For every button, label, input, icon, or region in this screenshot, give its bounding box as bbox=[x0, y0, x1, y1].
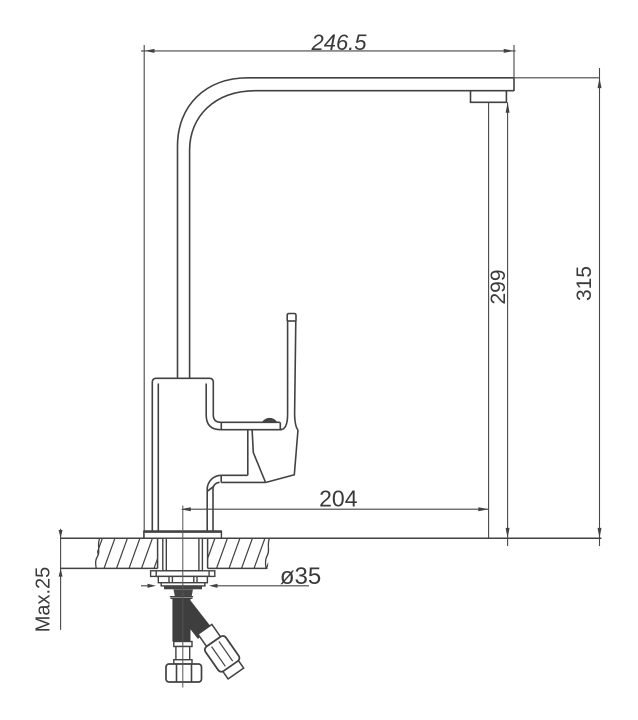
svg-text:204: 204 bbox=[319, 486, 358, 512]
svg-text:246.5: 246.5 bbox=[310, 30, 367, 55]
svg-text:Max.25: Max.25 bbox=[33, 567, 55, 633]
svg-text:315: 315 bbox=[573, 266, 596, 301]
svg-text:ø35: ø35 bbox=[280, 563, 321, 590]
svg-text:299: 299 bbox=[487, 269, 510, 304]
